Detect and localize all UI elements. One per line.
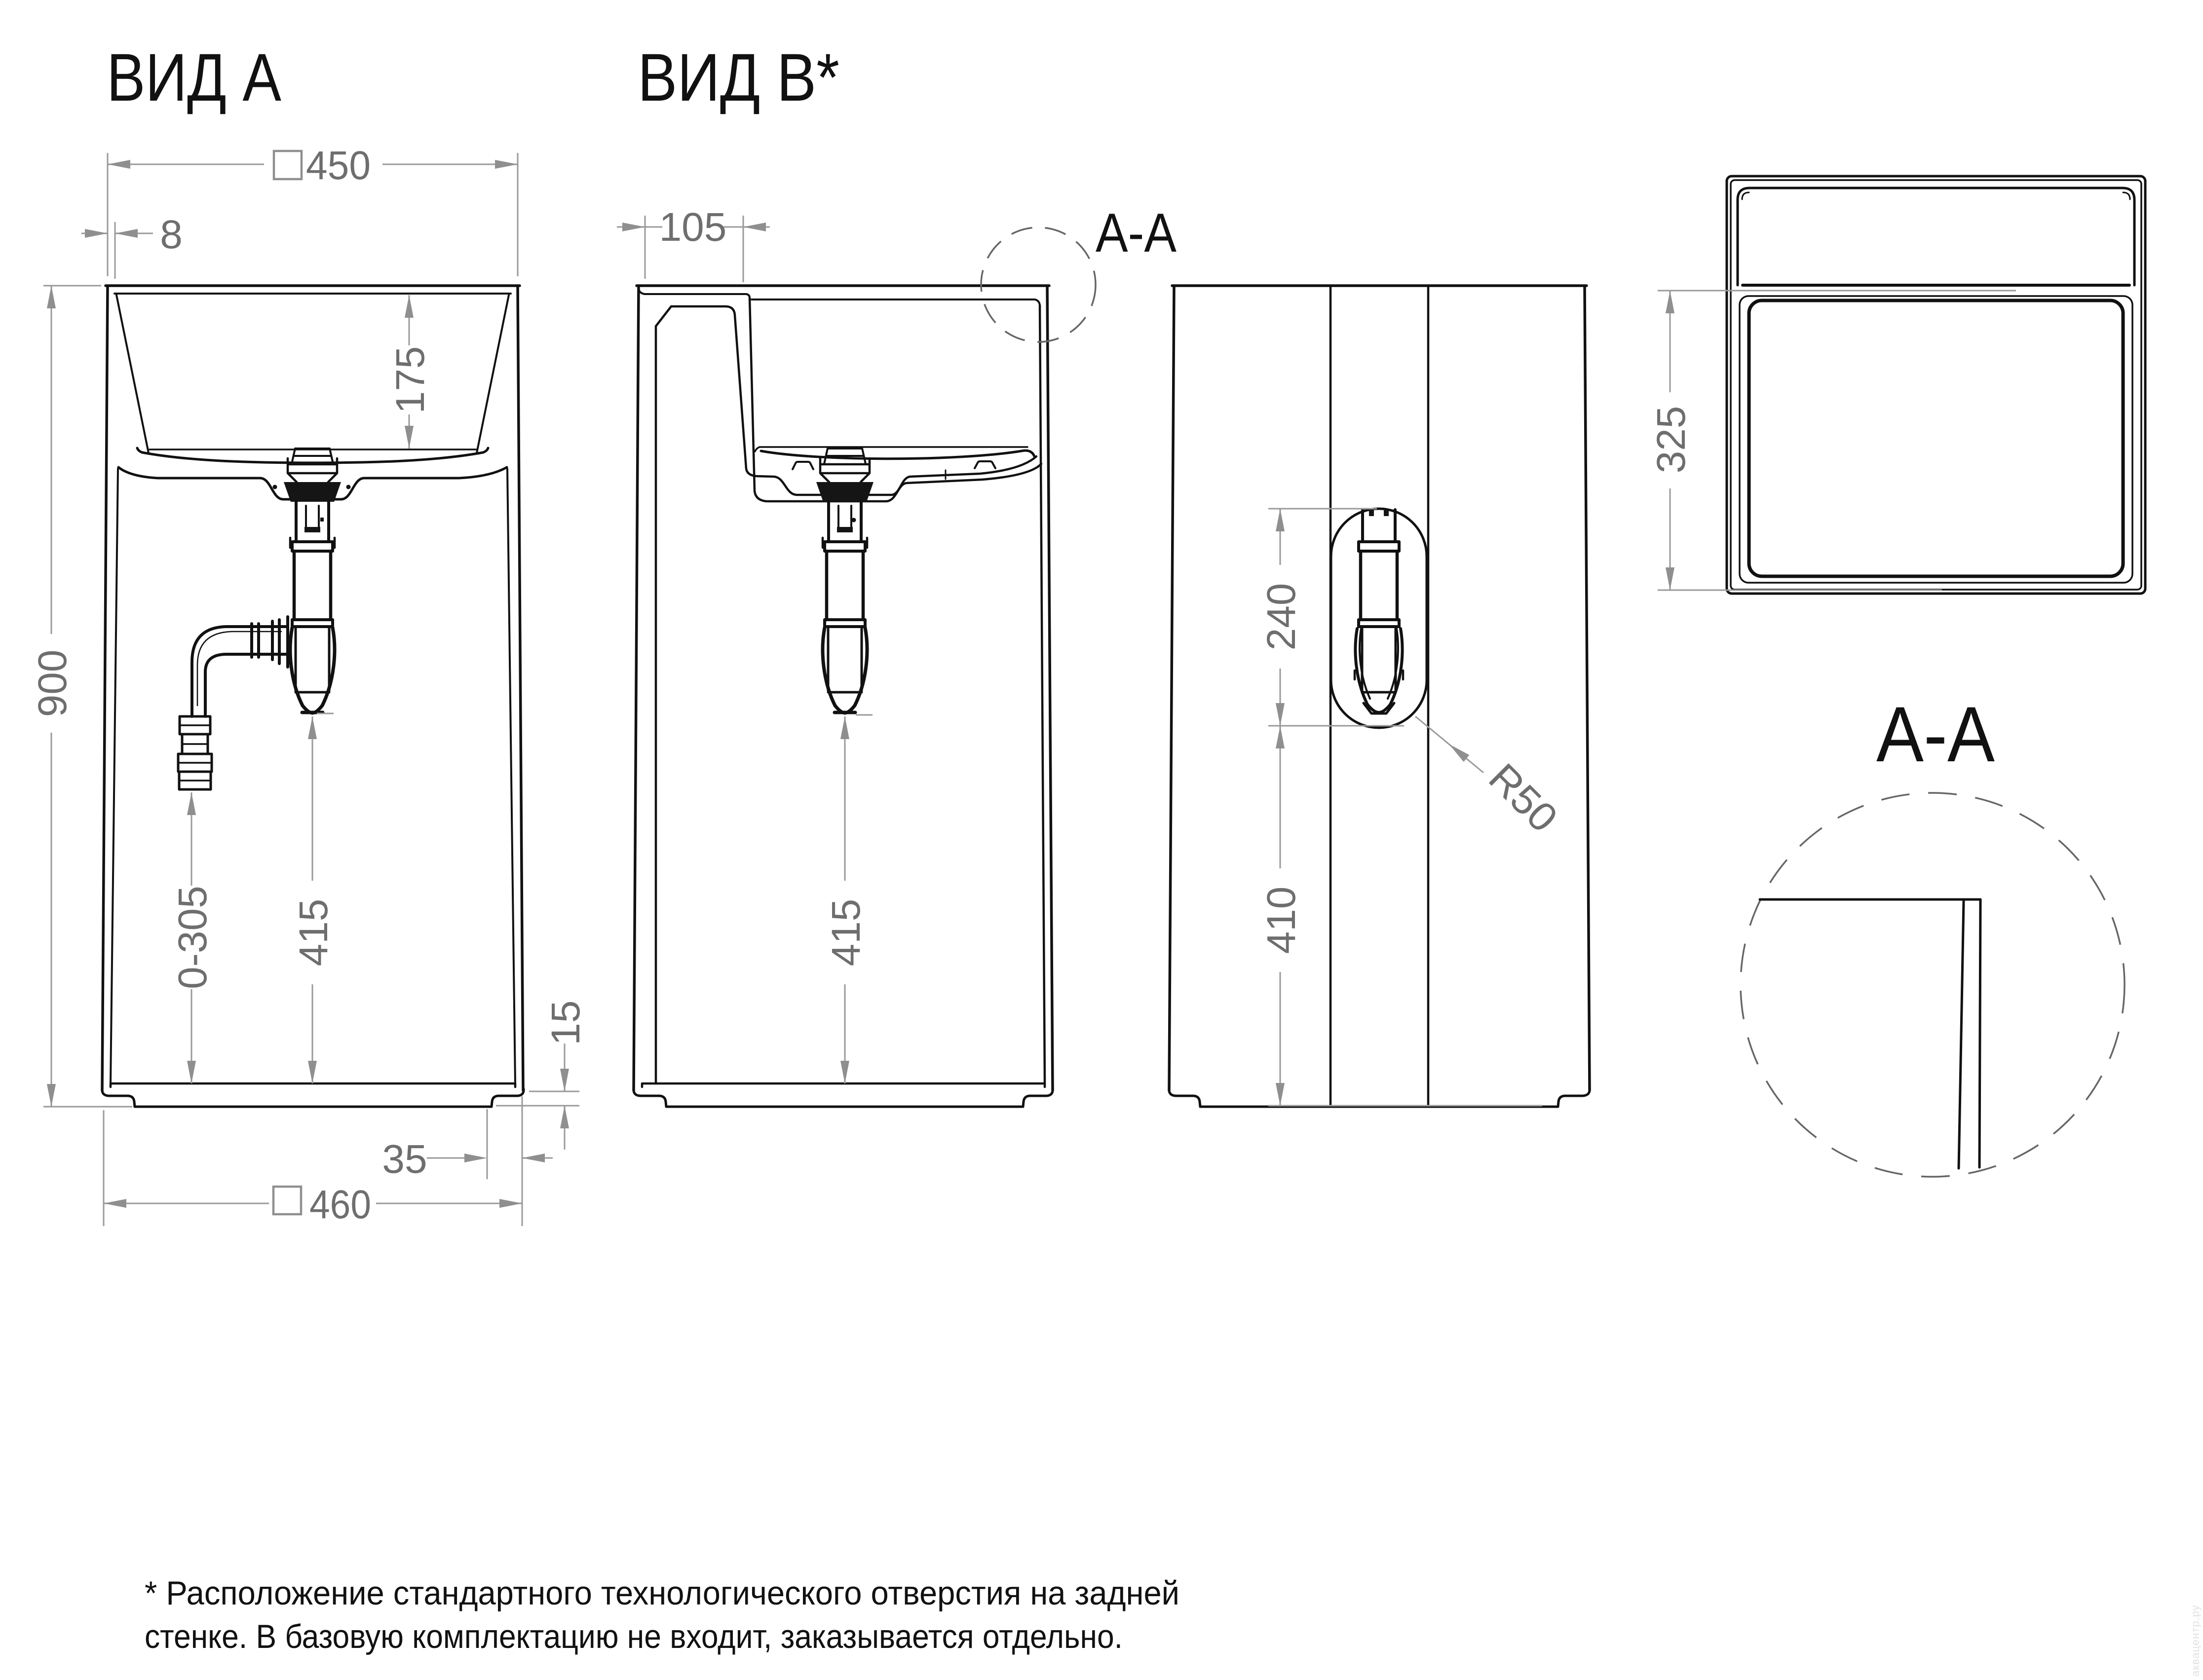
svg-text:аквацентр.ру: аквацентр.ру	[2189, 1605, 2202, 1677]
svg-text:стенке. В базовую комплектацию: стенке. В базовую комплектацию не входит…	[145, 1618, 1123, 1655]
svg-text:8: 8	[160, 212, 183, 257]
svg-text:450: 450	[306, 143, 371, 188]
svg-text:A-A: A-A	[1876, 690, 1995, 778]
svg-text:* Расположение стандартного те: * Расположение стандартного технологичес…	[145, 1574, 1179, 1612]
svg-text:175: 175	[388, 346, 433, 414]
svg-text:460: 460	[309, 1182, 371, 1227]
svg-text:105: 105	[659, 205, 727, 250]
svg-text:415: 415	[824, 899, 869, 967]
svg-text:15: 15	[543, 1000, 588, 1045]
svg-text:ВИД B*: ВИД B*	[638, 40, 839, 115]
svg-text:35: 35	[382, 1137, 427, 1182]
svg-text:415: 415	[291, 899, 336, 967]
svg-text:ВИД А: ВИД А	[107, 40, 282, 115]
svg-text:A-A: A-A	[1096, 202, 1177, 263]
svg-text:325: 325	[1649, 406, 1694, 474]
svg-text:900: 900	[30, 650, 75, 717]
svg-text:410: 410	[1259, 887, 1304, 954]
svg-text:240: 240	[1259, 583, 1304, 651]
svg-text:0-305: 0-305	[170, 886, 215, 989]
